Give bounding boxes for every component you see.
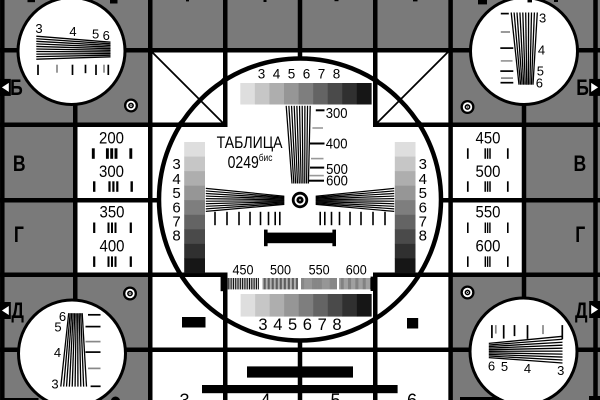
svg-text:Г: Г [14, 223, 24, 247]
svg-text:8: 8 [419, 227, 427, 244]
svg-text:Д: Д [575, 299, 588, 323]
svg-text:4: 4 [69, 24, 76, 39]
svg-text:6: 6 [303, 67, 311, 82]
svg-text:6: 6 [303, 316, 312, 334]
svg-text:3: 3 [51, 376, 58, 391]
svg-text:0249: 0249 [228, 152, 259, 172]
svg-text:3: 3 [258, 67, 266, 82]
svg-text:500: 500 [270, 262, 291, 278]
svg-text:3: 3 [258, 316, 267, 334]
svg-text:5: 5 [92, 26, 99, 41]
svg-text:В: В [13, 152, 26, 176]
svg-text:8: 8 [172, 227, 180, 244]
svg-text:Б: Б [10, 76, 23, 100]
svg-text:В: В [573, 152, 586, 176]
svg-text:Д: Д [11, 299, 24, 323]
svg-text:300: 300 [99, 163, 124, 181]
svg-text:400: 400 [100, 238, 125, 256]
svg-text:8: 8 [332, 316, 341, 334]
svg-text:6: 6 [536, 75, 543, 90]
svg-text:4: 4 [54, 345, 61, 360]
svg-text:5: 5 [330, 391, 340, 400]
svg-text:6: 6 [488, 358, 495, 373]
svg-text:7: 7 [318, 316, 327, 334]
svg-text:бис: бис [259, 152, 273, 164]
svg-text:600: 600 [476, 238, 501, 256]
svg-text:3: 3 [179, 391, 189, 400]
svg-text:3: 3 [557, 363, 564, 378]
svg-text:500: 500 [476, 163, 501, 181]
svg-text:350: 350 [100, 204, 125, 222]
svg-text:3: 3 [35, 21, 42, 36]
svg-text:6: 6 [103, 28, 110, 43]
svg-text:4: 4 [273, 316, 282, 334]
svg-text:6: 6 [407, 391, 417, 400]
svg-text:8: 8 [333, 67, 341, 82]
svg-text:Г: Г [575, 223, 585, 247]
svg-text:550: 550 [309, 262, 330, 278]
svg-text:4: 4 [538, 43, 545, 58]
svg-text:4: 4 [260, 391, 270, 400]
svg-text:7: 7 [318, 67, 326, 82]
svg-text:600: 600 [346, 262, 367, 278]
svg-text:Б: Б [576, 76, 589, 100]
svg-text:4: 4 [524, 361, 531, 376]
svg-text:5: 5 [54, 319, 61, 334]
svg-text:550: 550 [476, 204, 501, 222]
svg-text:450: 450 [476, 129, 501, 147]
svg-text:5: 5 [501, 359, 508, 374]
svg-text:600: 600 [326, 173, 348, 189]
svg-text:5: 5 [288, 67, 296, 82]
svg-text:450: 450 [233, 262, 254, 278]
svg-text:200: 200 [99, 129, 124, 147]
svg-text:400: 400 [326, 136, 348, 152]
svg-text:5: 5 [288, 316, 297, 334]
svg-text:3: 3 [539, 10, 546, 25]
svg-text:300: 300 [326, 105, 348, 121]
svg-text:4: 4 [273, 67, 281, 82]
svg-text:ТАБЛИЦА: ТАБЛИЦА [217, 134, 284, 152]
